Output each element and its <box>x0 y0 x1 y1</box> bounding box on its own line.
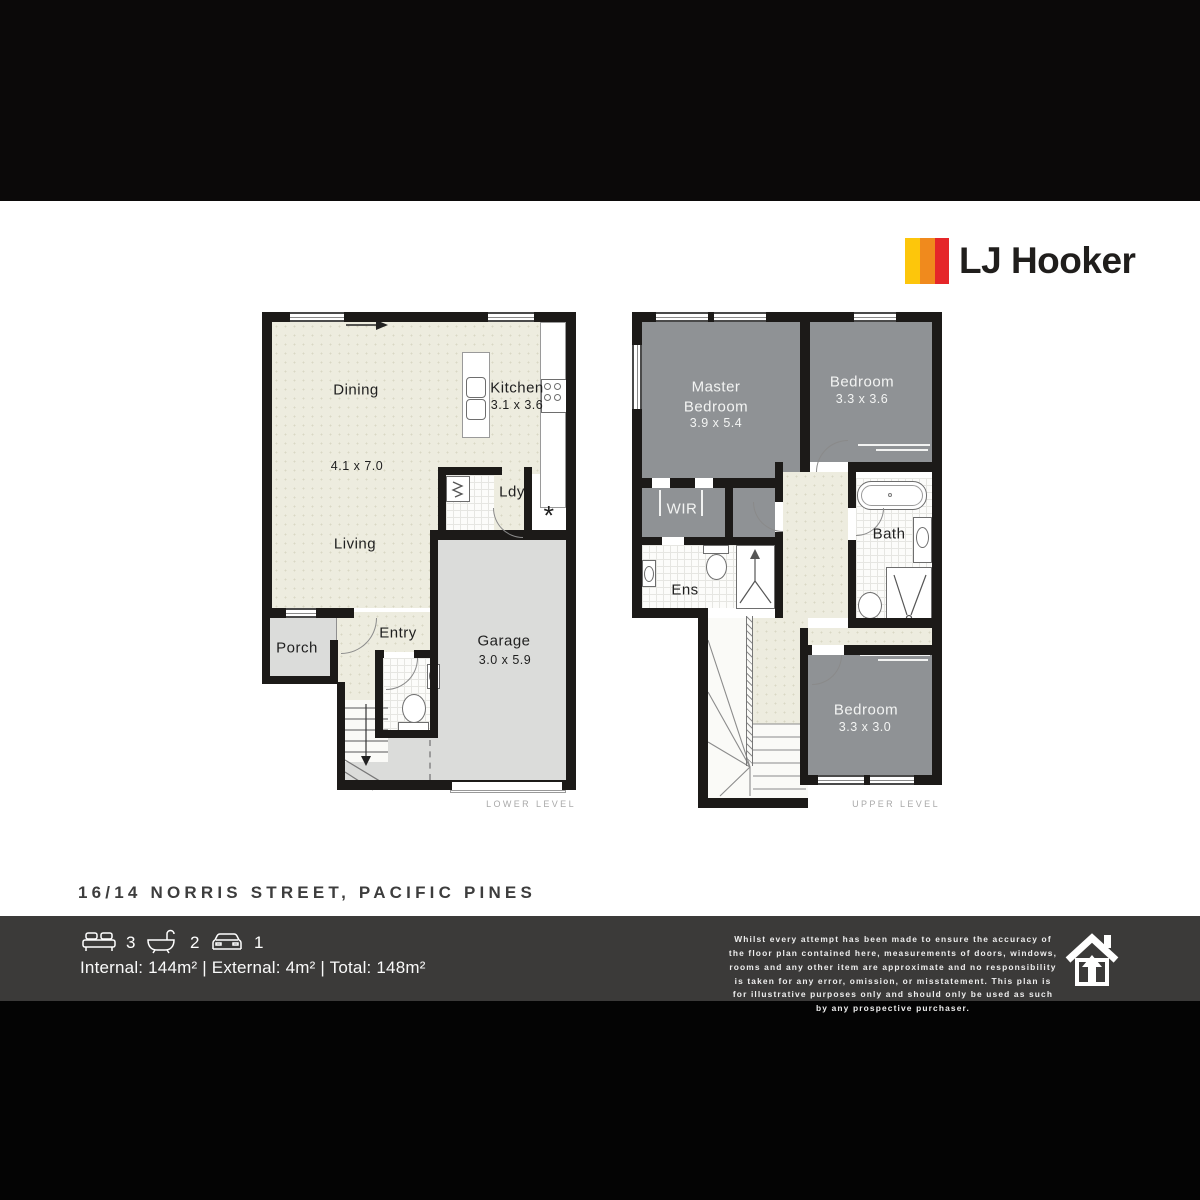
shower-spray-icon <box>886 567 932 625</box>
ensuite-basin <box>644 566 654 582</box>
room-dims-garage: 3.0 x 5.9 <box>479 652 531 668</box>
room-label-laundry: Ldy <box>499 482 525 502</box>
wall <box>775 532 783 618</box>
stair-balustrade <box>746 616 753 766</box>
hot-water-symbol: * <box>543 498 554 533</box>
room-dims-bedroom3: 3.3 x 3.0 <box>839 719 891 735</box>
wall <box>524 467 532 534</box>
garage-door-opening <box>452 782 562 790</box>
bathtub-inner <box>861 485 923 506</box>
bed-count: 3 <box>126 933 135 953</box>
car-icon <box>210 932 244 952</box>
wall <box>800 312 810 472</box>
wall <box>438 467 502 475</box>
wall <box>330 640 338 684</box>
wall <box>632 608 708 618</box>
logo-stripe-orange <box>920 238 935 284</box>
top-black-band <box>0 0 1200 201</box>
wall <box>670 478 695 488</box>
room-label-entry: Entry <box>379 623 417 643</box>
garage-door-line <box>450 790 566 793</box>
wall <box>844 645 942 655</box>
wall <box>848 462 942 472</box>
room-dims-master: 3.9 x 5.4 <box>690 415 742 431</box>
room-label-kitchen: Kitchen <box>490 378 544 398</box>
wall <box>642 537 662 545</box>
shower-arrow-icon <box>736 545 775 609</box>
hallway-floor <box>783 472 848 618</box>
wall <box>642 478 652 488</box>
wall <box>698 798 808 808</box>
wall <box>375 730 438 738</box>
wall <box>262 612 270 684</box>
wall <box>438 467 446 538</box>
wall <box>808 645 812 655</box>
robe-slider-line <box>858 444 930 446</box>
logo-stripe-yellow <box>905 238 920 284</box>
room-label-garage: Garage <box>477 631 530 651</box>
wir-rail <box>701 490 703 516</box>
burner <box>544 394 551 401</box>
bath-count: 2 <box>190 933 199 953</box>
wall <box>932 312 942 785</box>
wall <box>775 462 783 502</box>
room-label-bath: Bath <box>873 524 906 544</box>
room-label-living: Living <box>334 534 376 554</box>
sink-bowl-top <box>466 377 486 398</box>
toilet-tank <box>703 545 729 554</box>
bathtub-drain <box>888 493 892 497</box>
toilet-bowl <box>402 694 426 723</box>
logo-wordmark: LJ Hooker <box>959 240 1135 282</box>
dashed-overhead-line <box>429 740 431 780</box>
window <box>488 312 534 322</box>
burner <box>554 394 561 401</box>
bath-basin <box>916 527 929 548</box>
house-icon <box>1064 928 1120 988</box>
lower-level-caption: LOWER LEVEL <box>476 799 576 809</box>
window-mullion <box>708 312 714 322</box>
wall <box>262 676 337 684</box>
room-dims-living: 4.1 x 7.0 <box>331 458 383 474</box>
robe-slider-line <box>878 659 928 661</box>
burner <box>554 383 561 390</box>
wall <box>337 682 345 790</box>
wir-rail <box>659 490 661 516</box>
toilet-bowl <box>706 554 727 580</box>
room-dims-kitchen: 3.1 x 3.6 <box>491 397 543 413</box>
room-label-bedroom3: Bedroom <box>834 700 898 720</box>
wall <box>800 628 808 785</box>
upper-level-caption: UPPER LEVEL <box>840 799 940 809</box>
toilet-bowl <box>858 592 882 619</box>
window <box>290 312 344 322</box>
room-label-bedroom2: Bedroom <box>830 372 894 392</box>
window <box>854 312 896 322</box>
window <box>632 345 642 409</box>
burner <box>544 383 551 390</box>
wall <box>430 650 438 738</box>
trough-squiggle-icon <box>450 480 467 499</box>
window <box>818 775 864 785</box>
window <box>870 775 914 785</box>
wall <box>848 540 856 618</box>
room-label-porch: Porch <box>276 638 318 658</box>
bath-icon <box>146 928 176 954</box>
robe-slider-line <box>876 449 928 451</box>
disclaimer-text: Whilst every attempt has been made to en… <box>728 933 1058 1016</box>
kitchen-counter <box>540 322 566 508</box>
room-dims-bedroom2: 3.3 x 3.6 <box>836 391 888 407</box>
wall <box>262 312 272 618</box>
sink-bowl-bottom <box>466 399 486 420</box>
car-count: 1 <box>254 933 263 953</box>
wall <box>713 478 775 488</box>
room-label-ens: Ens <box>671 580 698 600</box>
room-label-wir: WIR <box>667 499 698 519</box>
wall <box>848 618 942 628</box>
wall <box>684 537 775 545</box>
room-label-master: Master Bedroom <box>661 378 771 417</box>
window <box>286 608 316 618</box>
wall <box>725 478 733 545</box>
bottom-black-band <box>0 1001 1200 1200</box>
logo-stripe-red <box>935 238 949 284</box>
property-address: 16/14 NORRIS STREET, PACIFIC PINES <box>78 883 536 903</box>
hall-bridge-floor <box>808 628 932 645</box>
floor-plan-page: LJ Hooker <box>0 0 1200 1200</box>
bed-icon <box>82 931 116 953</box>
area-summary: Internal: 144m² | External: 4m² | Total:… <box>80 958 426 978</box>
room-label-dining: Dining <box>333 380 379 400</box>
wall <box>698 618 708 808</box>
wall <box>848 472 856 508</box>
wall <box>375 650 383 738</box>
wall <box>566 312 576 790</box>
stairs-up-icon <box>700 612 808 808</box>
